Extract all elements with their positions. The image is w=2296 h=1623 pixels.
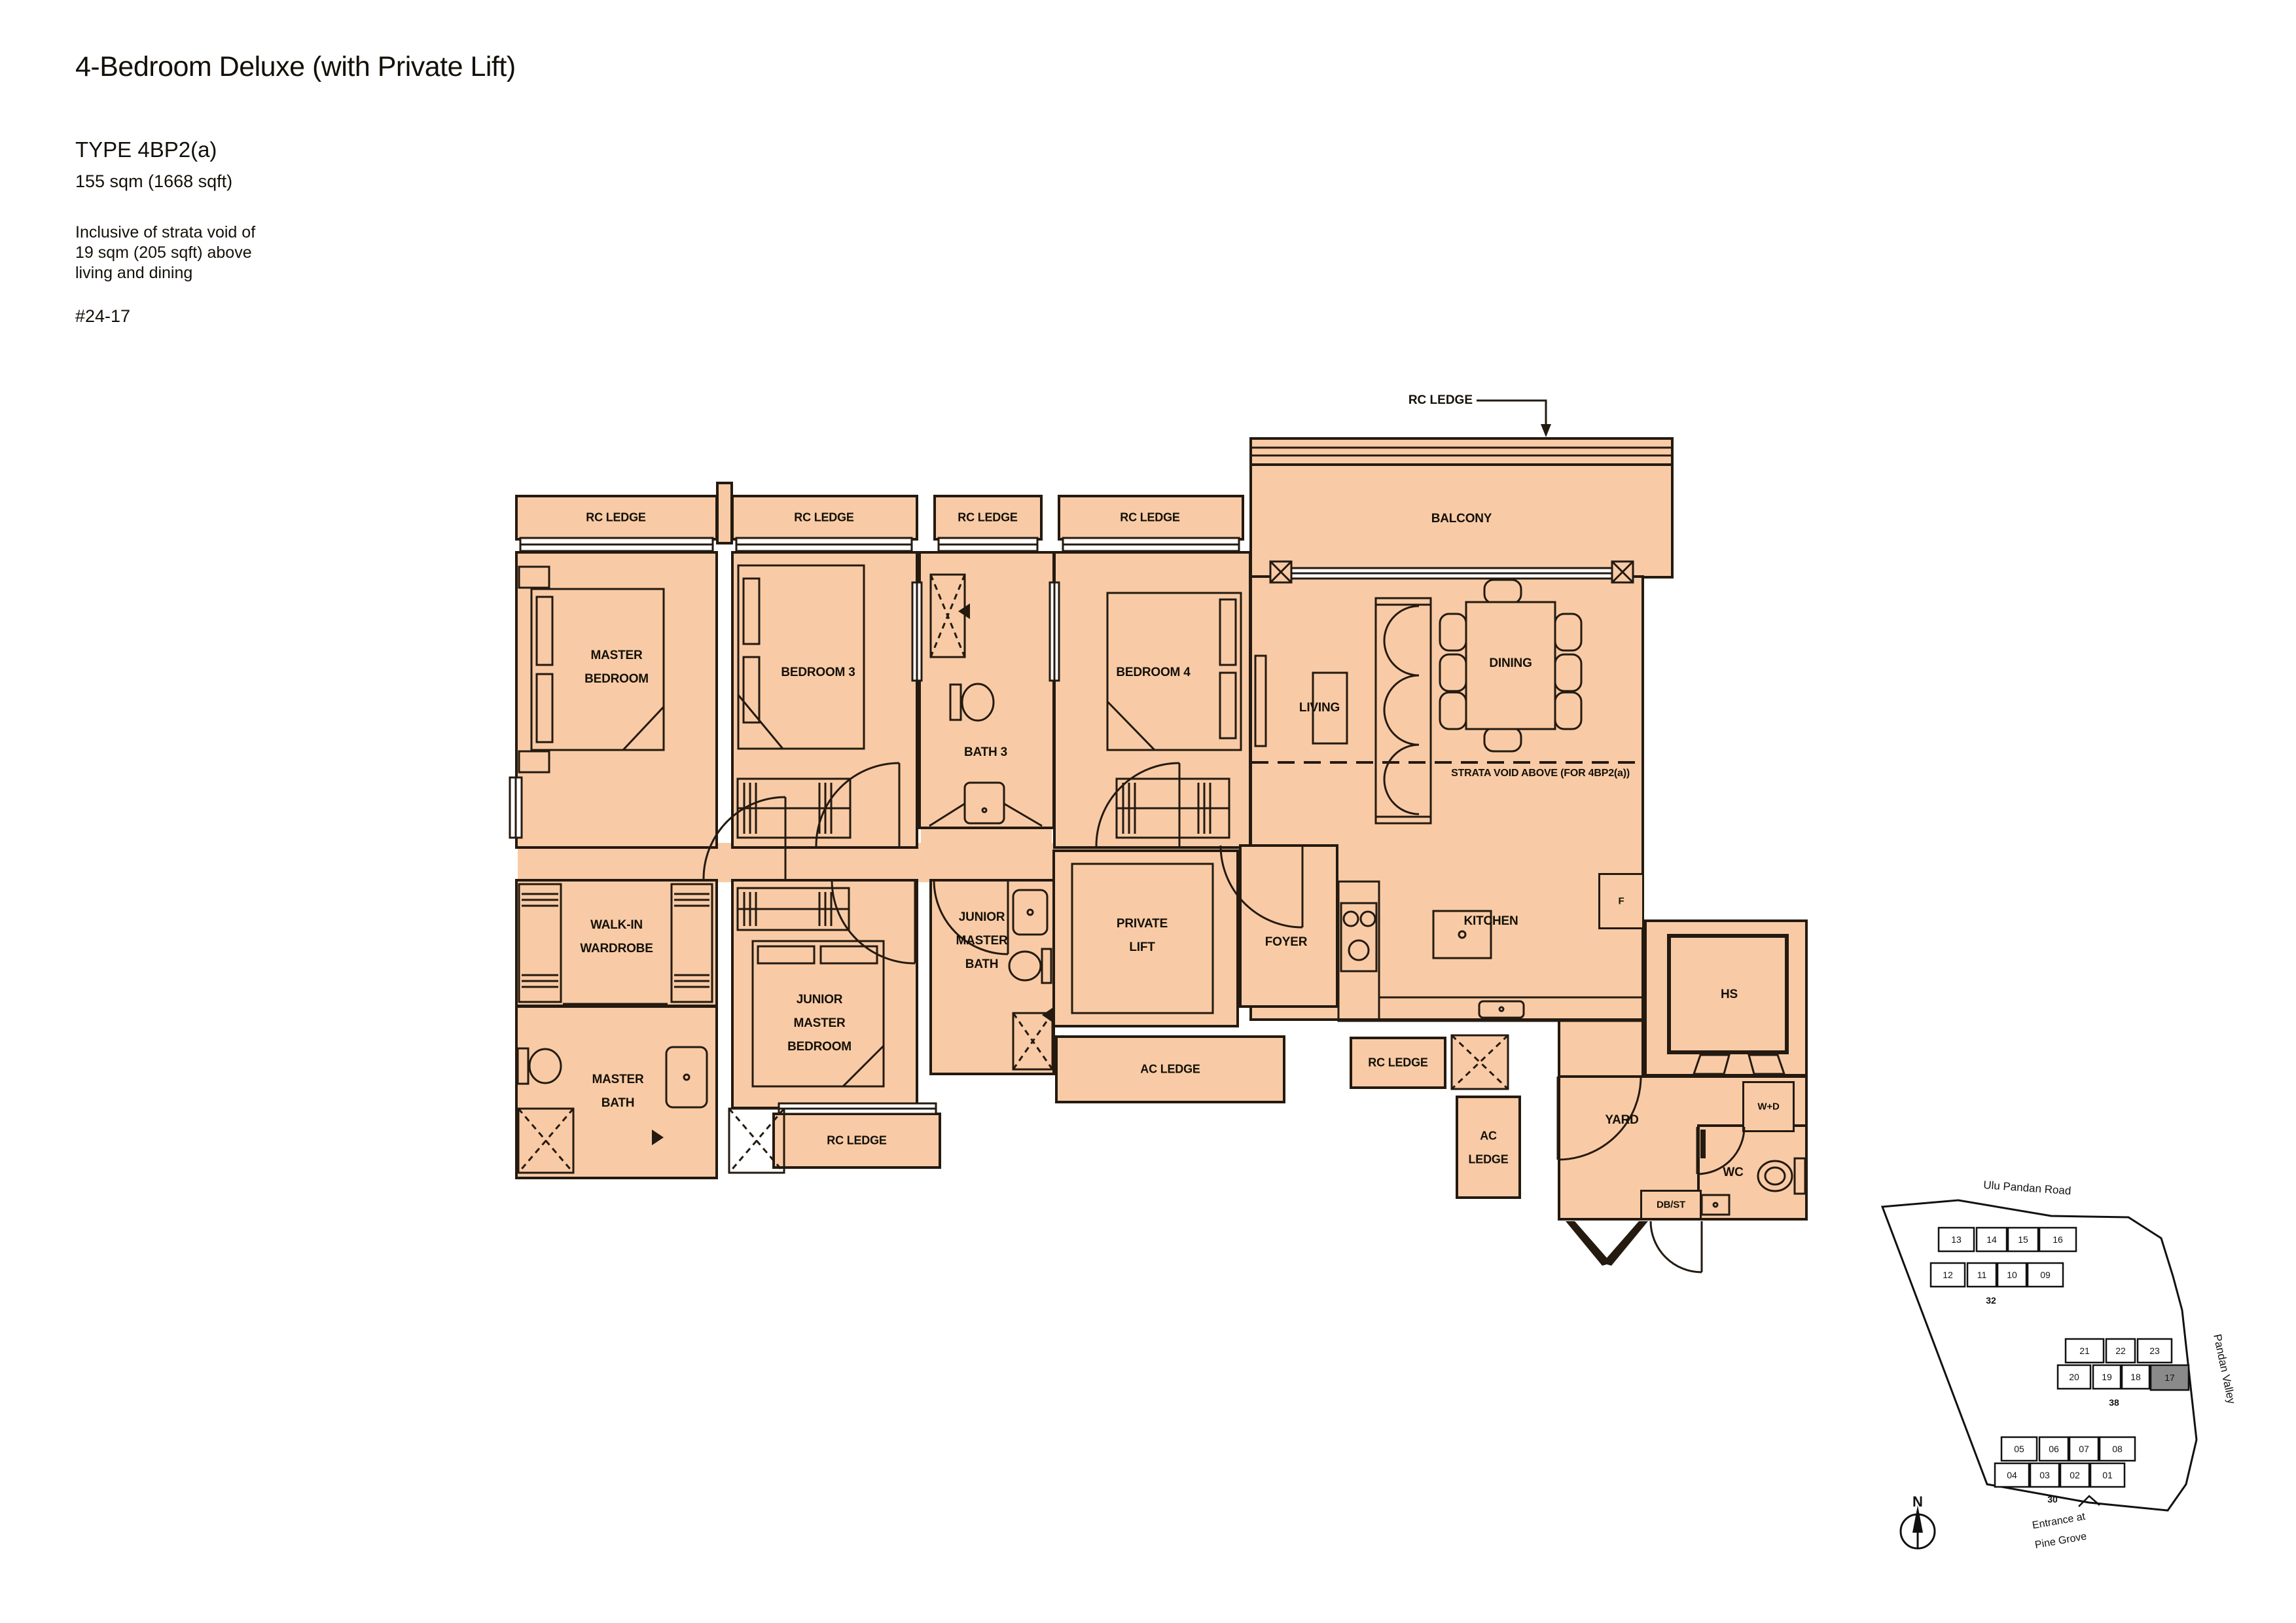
label-foyer: FOYER — [1265, 935, 1307, 950]
label-bath-3: BATH 3 — [964, 745, 1007, 760]
room-master-bedroom — [515, 551, 718, 849]
wc-walls — [1697, 1124, 1808, 1221]
label-rc-ledge-4: RC LEDGE — [1120, 511, 1179, 525]
entrance-label-line1: Entrance at — [2032, 1511, 2087, 1531]
unit-number: #24-17 — [75, 306, 130, 327]
svg-text:08: 08 — [2112, 1444, 2123, 1454]
room-bedroom-3 — [731, 551, 918, 849]
label-walk-in-wardrobe: WALK-IN — [590, 918, 643, 933]
label-rc-ledge-bottom: RC LEDGE — [827, 1134, 886, 1148]
svg-text:16: 16 — [2053, 1234, 2063, 1245]
room-bedroom-4 — [1053, 551, 1251, 849]
site-boundary — [1882, 1200, 2197, 1510]
site-cluster-32 — [1931, 1228, 2076, 1287]
svg-text:07: 07 — [2079, 1444, 2089, 1454]
site-cluster-30 — [1995, 1437, 2135, 1487]
label-master-bath: BATH — [601, 1096, 635, 1111]
rc-ledge-leader-arrow — [1477, 401, 1551, 437]
passage-to-yard — [1558, 1018, 1644, 1079]
svg-text:19: 19 — [2102, 1372, 2112, 1382]
label-junior-master-bedroom: BEDROOM — [787, 1040, 852, 1054]
strata-note: Inclusive of strata void of 19 sqm (205 … — [75, 223, 255, 283]
label-ac-ledge-bottom: AC — [1480, 1130, 1497, 1143]
strata-note-line: Inclusive of strata void of — [75, 223, 255, 243]
north-label: N — [1912, 1493, 1923, 1510]
label-balcony: BALCONY — [1431, 512, 1492, 526]
floorplan-sheet: { "colors": { "room_fill": "#f8cba6", "w… — [0, 0, 2296, 1623]
ac-x-box-icon — [1452, 1035, 1508, 1089]
road-label: Ulu Pandan Road — [1983, 1179, 2072, 1197]
label-db-st: DB/ST — [1657, 1200, 1685, 1211]
label-junior-master-bath: BATH — [965, 957, 999, 972]
label-walk-in-wardrobe: WARDROBE — [580, 942, 653, 956]
svg-text:21: 21 — [2079, 1346, 2090, 1356]
label-living: LIVING — [1299, 701, 1340, 715]
site-block-17-highlighted — [2151, 1365, 2189, 1390]
label-rc-ledge-1: RC LEDGE — [586, 511, 645, 525]
label-junior-master-bath: JUNIOR — [959, 910, 1005, 925]
label-ac-ledge-bottom: LEDGE — [1468, 1153, 1508, 1167]
room-foyer — [1239, 844, 1338, 1008]
label-rc-ledge-small: RC LEDGE — [1368, 1056, 1427, 1070]
svg-text:15: 15 — [2018, 1234, 2028, 1245]
label-private-lift: PRIVATE — [1117, 917, 1168, 931]
svg-text:38: 38 — [2109, 1397, 2119, 1408]
label-wc: WC — [1723, 1166, 1743, 1180]
svg-text:06: 06 — [2049, 1444, 2059, 1454]
svg-text:11: 11 — [1977, 1270, 1987, 1280]
label-hs: HS — [1721, 988, 1738, 1002]
svg-text:17: 17 — [2164, 1372, 2175, 1383]
page-title: 4-Bedroom Deluxe (with Private Lift) — [75, 51, 516, 83]
label-kitchen: KITCHEN — [1463, 914, 1518, 929]
label-rc-ledge-2: RC LEDGE — [794, 511, 853, 525]
unit-area: 155 sqm (1668 sqft) — [75, 171, 232, 192]
label-junior-master-bath: MASTER — [956, 934, 1007, 948]
label-bedroom-4: BEDROOM 4 — [1116, 666, 1190, 680]
svg-text:20: 20 — [2069, 1372, 2079, 1382]
svg-text:10: 10 — [2007, 1270, 2017, 1280]
site-map — [1882, 1200, 2197, 1548]
balcony-rc-strip — [1249, 437, 1674, 466]
svg-text:05: 05 — [2014, 1444, 2024, 1454]
site-block-numbers: 13 14 15 16 12 11 10 09 32 21 22 23 20 1… — [1943, 1234, 2175, 1505]
svg-text:22: 22 — [2115, 1346, 2126, 1356]
label-yard: YARD — [1605, 1113, 1638, 1128]
label-master-bedroom: BEDROOM — [584, 672, 649, 687]
svg-text:09: 09 — [2040, 1270, 2051, 1280]
label-wd: W+D — [1757, 1101, 1779, 1113]
label-junior-master-bedroom: MASTER — [793, 1016, 845, 1031]
svg-text:23: 23 — [2149, 1346, 2160, 1356]
room-junior-master-bath — [929, 879, 1055, 1075]
label-fridge: F — [1619, 896, 1624, 907]
room-private-lift — [1052, 849, 1239, 1027]
north-arrow-icon — [1901, 1505, 1935, 1548]
unit-type: TYPE 4BP2(a) — [75, 137, 217, 162]
label-rc-ledge-3: RC LEDGE — [958, 511, 1017, 525]
svg-text:30: 30 — [2047, 1494, 2058, 1505]
label-bedroom-3: BEDROOM 3 — [781, 666, 855, 680]
svg-text:03: 03 — [2039, 1470, 2050, 1480]
label-ac-ledge-left: AC LEDGE — [1140, 1063, 1200, 1077]
label-dining: DINING — [1489, 656, 1532, 671]
svg-text:12: 12 — [1943, 1270, 1953, 1280]
svg-text:18: 18 — [2130, 1372, 2141, 1382]
room-master-bath — [515, 1005, 718, 1179]
svg-text:01: 01 — [2102, 1470, 2113, 1480]
label-master-bedroom: MASTER — [590, 649, 642, 663]
label-master-bath: MASTER — [592, 1073, 643, 1087]
entrance-label-line2: Pine Grove — [2034, 1531, 2088, 1551]
svg-text:02: 02 — [2070, 1470, 2080, 1480]
entrance-caret-icon — [2079, 1496, 2100, 1507]
svg-text:14: 14 — [1986, 1234, 1997, 1245]
site-cluster-38 — [2058, 1339, 2189, 1390]
ac-ledge-bottom — [1456, 1096, 1521, 1199]
label-rc-ledge-leader: RC LEDGE — [1408, 393, 1473, 408]
label-private-lift: LIFT — [1129, 940, 1155, 955]
label-junior-master-bedroom: JUNIOR — [797, 993, 843, 1007]
valley-label: Pandan Valley — [2211, 1333, 2238, 1405]
strata-note-line: living and dining — [75, 263, 255, 283]
svg-text:13: 13 — [1951, 1234, 1962, 1245]
svg-text:04: 04 — [2007, 1470, 2017, 1480]
svg-text:32: 32 — [1986, 1295, 1996, 1306]
strata-note-line: 19 sqm (205 sqft) above — [75, 243, 255, 263]
label-strata-void: STRATA VOID ABOVE (FOR 4BP2(a)) — [1451, 768, 1630, 779]
room-bath-3 — [918, 551, 1055, 829]
